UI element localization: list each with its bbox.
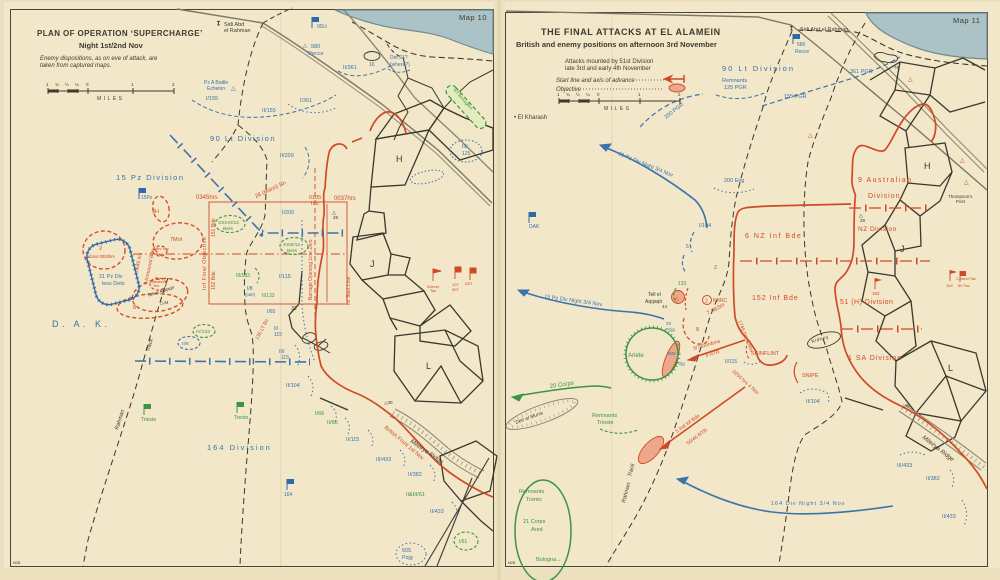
svg-text:125 PGR: 125 PGR — [724, 85, 747, 91]
svg-text:H: H — [396, 154, 403, 164]
svg-text:15Pz: 15Pz — [141, 195, 153, 201]
svg-text:II/104: II/104 — [806, 399, 820, 405]
svg-text:II/382: II/382 — [926, 476, 940, 482]
svg-text:II/155: II/155 — [262, 108, 276, 114]
svg-text:II/104: II/104 — [286, 383, 300, 389]
svg-text:125: 125 — [462, 151, 471, 157]
svg-text:Remnants: Remnants — [592, 413, 617, 419]
svg-text:DAK: DAK — [529, 224, 540, 230]
svg-text:44: 44 — [662, 304, 668, 309]
svg-text:29: 29 — [860, 218, 866, 223]
svg-text:Ared: Ared — [531, 527, 543, 533]
svg-text:Trieste: Trieste — [597, 420, 614, 426]
svg-text:I/155: I/155 — [206, 96, 218, 102]
svg-text:Trieste: Trieste — [141, 417, 156, 423]
svg-text:Sidi Abd el Rahman: Sidi Abd el Rahman — [800, 27, 848, 33]
svg-text:Map 11: Map 11 — [953, 16, 980, 25]
svg-text:Inf Final Objective: Inf Final Objective — [202, 236, 208, 290]
svg-text:taken from captured maps.: taken from captured maps. — [40, 63, 111, 69]
svg-text:J: J — [900, 244, 905, 254]
svg-text:II/382: II/382 — [408, 472, 422, 478]
svg-text:2: 2 — [99, 246, 102, 252]
svg-text:△: △ — [231, 86, 236, 92]
svg-text:Trento: Trento — [234, 415, 248, 421]
svg-text:△: △ — [675, 296, 679, 302]
svg-text:Inf Start Line: Inf Start Line — [346, 276, 352, 305]
svg-text:90T: 90T — [452, 287, 459, 292]
svg-text:II/200: II/200 — [280, 153, 294, 159]
svg-text:about 0830hrs: about 0830hrs — [88, 254, 115, 259]
svg-text:III/: III/ — [462, 144, 468, 150]
svg-text:II/115: II/115 — [346, 437, 359, 443]
svg-text:III/433: III/433 — [376, 457, 391, 463]
svg-text:L: L — [426, 361, 431, 371]
svg-text:Bers: Bers — [287, 248, 297, 254]
svg-text:I/361: I/361 — [300, 98, 312, 104]
svg-text:33: 33 — [291, 306, 297, 312]
svg-text:7Mot: 7Mot — [170, 237, 183, 243]
svg-text:8: 8 — [133, 305, 136, 311]
svg-text:¼: ¼ — [586, 92, 590, 97]
svg-text:Ariete: Ariete — [628, 353, 644, 359]
svg-text:51 (H) Division: 51 (H) Division — [840, 299, 893, 306]
svg-text:II/433: II/433 — [942, 514, 956, 520]
svg-text:1 SA Division: 1 SA Division — [848, 355, 902, 362]
svg-text:SNIPE: SNIPE — [802, 373, 819, 379]
svg-text:½: ½ — [65, 81, 69, 87]
svg-text:33: 33 — [666, 321, 672, 326]
svg-text:115: 115 — [281, 355, 289, 361]
svg-text:PLAN OF OPERATION ‘SUPERCHA: PLAN OF OPERATION ‘SUPERCHARGE’ — [37, 29, 203, 38]
svg-text:¾: ¾ — [55, 82, 59, 87]
svg-text:115: 115 — [274, 332, 282, 338]
svg-text:Map 10: Map 10 — [459, 13, 487, 22]
svg-text:II/8: II/8 — [182, 341, 189, 347]
svg-text:76: 76 — [894, 65, 900, 70]
svg-text:(where?): (where?) — [390, 62, 410, 68]
svg-text:164 Div Night 3/4 Nov: 164 Div Night 3/4 Nov — [771, 501, 846, 507]
svg-text:Trento: Trento — [526, 497, 542, 503]
svg-text:Remnants: Remnants — [519, 489, 544, 495]
svg-text:Attacks mounted by 51st Divisi: Attacks mounted by 51st Division — [565, 59, 653, 65]
svg-text:I/200: I/200 — [282, 210, 294, 216]
svg-text:15 Pz Division: 15 Pz Division — [116, 173, 185, 182]
svg-text:I/115: I/115 — [279, 274, 291, 280]
svg-text:I/104: I/104 — [699, 223, 711, 229]
svg-text:0345hrs: 0345hrs — [196, 195, 218, 201]
svg-text:II/361: II/361 — [343, 65, 357, 71]
svg-text:II/133: II/133 — [262, 293, 275, 299]
svg-text:△30: △30 — [384, 400, 393, 405]
svg-text:Tac: Tac — [430, 288, 436, 293]
svg-text:600: 600 — [668, 351, 676, 356]
svg-text:Echelon: Echelon — [207, 86, 225, 92]
svg-text:I/61: I/61 — [459, 539, 468, 545]
svg-text:J: J — [370, 259, 375, 269]
svg-text:II/115: II/115 — [725, 359, 737, 365]
svg-text:XXIII/12: XXIII/12 — [283, 242, 300, 248]
svg-text:NZT: NZT — [465, 281, 473, 286]
svg-text:late 3rd and early 4th Novembe: late 3rd and early 4th November — [565, 66, 651, 72]
svg-text:164: 164 — [284, 492, 293, 498]
svg-text:90Lt: 90Lt — [317, 24, 327, 30]
svg-text:MZB: MZB — [13, 561, 21, 565]
svg-text:Det 21?: Det 21? — [390, 55, 408, 61]
svg-text:Night 1st/2nd Nov: Night 1st/2nd Nov — [79, 41, 144, 50]
svg-text:Bologna→: Bologna→ — [536, 557, 562, 563]
svg-text:Start line and axis of advance: Start line and axis of advance — [556, 78, 635, 84]
svg-text:152 Bde: 152 Bde — [211, 271, 217, 290]
svg-text:0037hrs: 0037hrs — [334, 196, 356, 202]
svg-text:• El Kharash: • El Kharash — [514, 115, 547, 121]
svg-text:MILES: MILES — [97, 96, 125, 102]
svg-text:Aqqaqir: Aqqaqir — [645, 299, 663, 305]
svg-text:152: 152 — [872, 291, 880, 296]
svg-text:¼: ¼ — [75, 82, 79, 87]
svg-text:III/133: III/133 — [236, 273, 250, 279]
svg-text:90 Lt Division: 90 Lt Division — [722, 64, 795, 73]
svg-text:(part): (part) — [245, 292, 256, 297]
svg-text:less Dets: less Dets — [102, 281, 125, 287]
svg-text:Post: Post — [956, 199, 966, 204]
svg-text:△: △ — [908, 77, 913, 83]
svg-text:2: 2 — [714, 265, 717, 271]
svg-text:133: 133 — [678, 281, 687, 287]
svg-text:British and enemy positions on: British and enemy positions on afternoon… — [516, 40, 717, 49]
svg-text:Remnants: Remnants — [722, 78, 747, 84]
svg-text:△: △ — [964, 180, 969, 186]
svg-text:Division: Division — [868, 193, 901, 200]
svg-text:580: 580 — [311, 44, 320, 50]
svg-text:605: 605 — [402, 548, 411, 554]
svg-text:II&III/61: II&III/61 — [406, 492, 425, 498]
svg-text:155 PGR: 155 PGR — [784, 94, 807, 100]
svg-text:II/66: II/66 — [327, 420, 338, 426]
svg-text:I/65: I/65 — [267, 309, 276, 315]
svg-text:16: 16 — [369, 62, 375, 68]
svg-text:Pzjg: Pzjg — [402, 555, 413, 561]
svg-text:△: △ — [960, 158, 965, 164]
svg-text:361 PGR: 361 PGR — [850, 69, 873, 75]
svg-text:Recce: Recce — [795, 49, 809, 55]
svg-text:hrs: hrs — [311, 201, 319, 207]
svg-text:8: 8 — [696, 327, 699, 333]
svg-text:5: 5 — [686, 244, 689, 250]
svg-text:90 Lt Division: 90 Lt Division — [210, 134, 276, 143]
svg-text:Bers: Bers — [223, 226, 233, 232]
svg-text:Tell el: Tell el — [648, 292, 661, 298]
svg-text:Recce: Recce — [308, 51, 324, 57]
svg-text:154: 154 — [946, 283, 953, 288]
svg-text:200 Eng: 200 Eng — [724, 178, 745, 184]
svg-text:△30: △30 — [902, 403, 911, 408]
svg-text:9 Australian: 9 Australian — [858, 177, 913, 184]
svg-text:Enemy dispositions, as on eve: Enemy dispositions, as on eve of attack,… — [40, 56, 158, 62]
svg-text:3H: 3H — [152, 209, 159, 215]
svg-text:I/66: I/66 — [315, 411, 324, 417]
svg-text:¾: ¾ — [566, 92, 570, 97]
svg-text:III/433: III/433 — [897, 463, 912, 469]
svg-text:SKINFLINT: SKINFLINT — [751, 351, 780, 357]
svg-text:6 NZ Inf Bde: 6 NZ Inf Bde — [745, 233, 802, 240]
svg-text:D. A. K.: D. A. K. — [52, 319, 111, 329]
svg-text:152 Inf Bde: 152 Inf Bde — [752, 295, 799, 302]
svg-text:NZ Division: NZ Division — [858, 226, 897, 233]
svg-text:Pzjg: Pzjg — [666, 327, 675, 332]
svg-text:21 Pz Div: 21 Pz Div — [99, 274, 123, 280]
svg-text:THE FINAL ATTACKS AT EL A: THE FINAL ATTACKS AT EL ALAMEIN — [541, 27, 721, 37]
svg-text:△: △ — [808, 133, 813, 139]
svg-text:H: H — [924, 161, 931, 171]
svg-text:580: 580 — [797, 42, 806, 48]
svg-text:50 Tac: 50 Tac — [958, 283, 970, 288]
svg-text:½: ½ — [576, 91, 580, 97]
svg-text:II/433: II/433 — [430, 509, 444, 515]
svg-text:29: 29 — [333, 215, 339, 220]
svg-text:XXXXI/12: XXXXI/12 — [218, 220, 239, 226]
svg-text:L: L — [948, 363, 953, 373]
svg-text:2: 2 — [705, 299, 708, 305]
svg-text:1 Armd Tac: 1 Armd Tac — [956, 276, 976, 281]
svg-text:IV/133: IV/133 — [196, 329, 210, 335]
svg-text:Barrage Opening Line Zero: Barrage Opening Line Zero — [308, 239, 314, 300]
svg-text:el Rahman: el Rahman — [224, 28, 251, 34]
svg-text:164 Division: 164 Division — [207, 443, 272, 452]
svg-text:MZB: MZB — [508, 561, 516, 565]
svg-text:21 Corps: 21 Corps — [523, 519, 546, 525]
svg-text:MILES: MILES — [604, 106, 632, 112]
svg-text:Yeo: Yeo — [153, 284, 159, 288]
svg-text:△44: △44 — [160, 300, 169, 305]
